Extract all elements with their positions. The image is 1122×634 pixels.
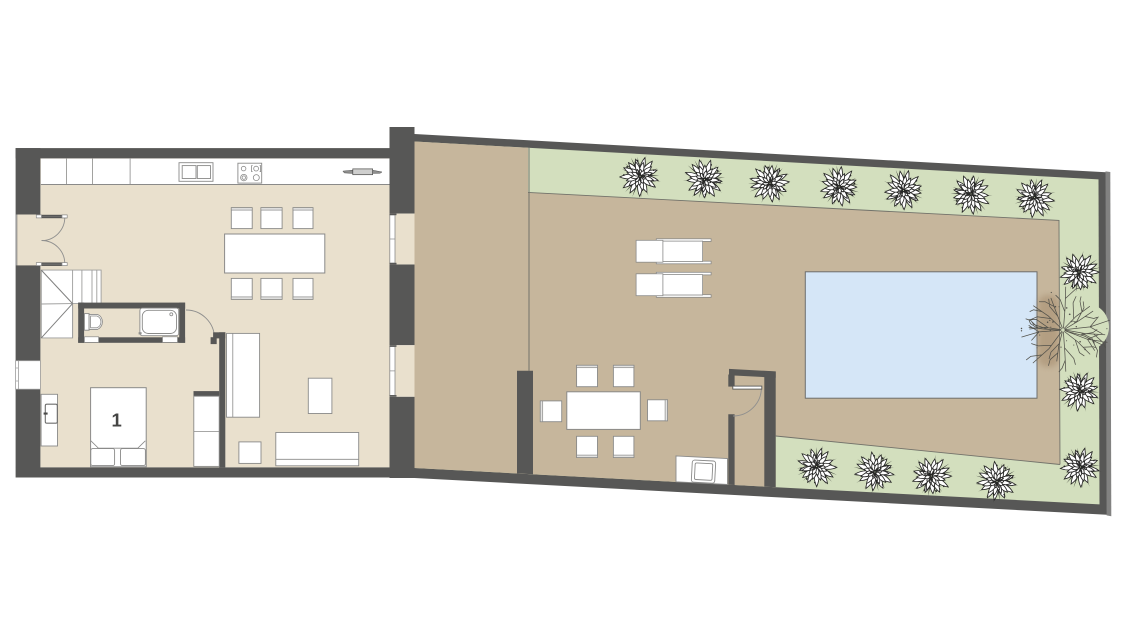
svg-text:1: 1	[111, 410, 121, 431]
